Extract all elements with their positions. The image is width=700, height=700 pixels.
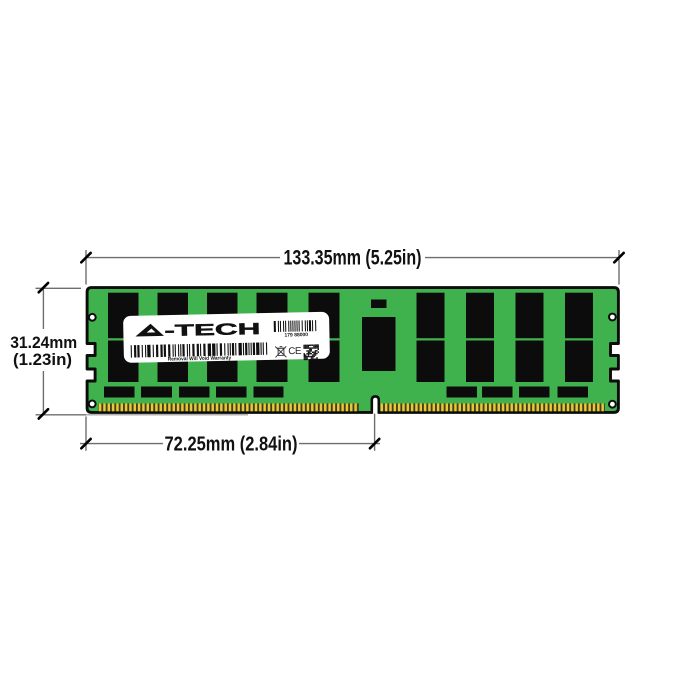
svg-text:133.35mm (5.25in): 133.35mm (5.25in) xyxy=(284,245,422,269)
svg-text:-TECH: -TECH xyxy=(164,321,260,340)
svg-text:179 88000: 179 88000 xyxy=(284,332,308,338)
svg-text:CE: CE xyxy=(288,346,302,357)
svg-text:(1.23in): (1.23in) xyxy=(13,350,72,369)
svg-text:72.25mm (2.84in): 72.25mm (2.84in) xyxy=(165,432,298,455)
